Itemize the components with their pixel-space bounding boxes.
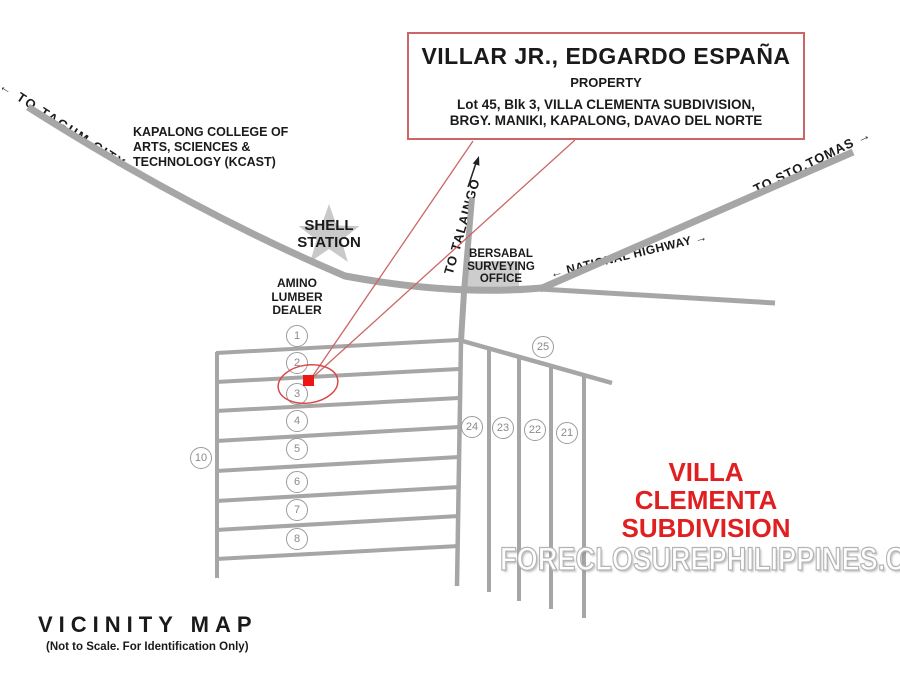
property-type: PROPERTY: [570, 75, 642, 90]
property-address: Lot 45, Blk 3, VILLA CLEMENTA SUBDIVISIO…: [450, 97, 763, 130]
vicinity-map: 12345678102524232221 KAPALONG COLLEGE OF…: [0, 0, 900, 675]
property-title-box: VILLAR JR., EDGARDO ESPAÑA PROPERTY Lot …: [407, 32, 805, 140]
property-location-marker: [303, 375, 314, 386]
watermark: FORECLOSUREPHILIPPINES.COM: [500, 541, 900, 578]
leader-line-left: [310, 141, 473, 380]
property-owner: VILLAR JR., EDGARDO ESPAÑA: [421, 43, 790, 70]
leader-line-right: [311, 140, 575, 379]
